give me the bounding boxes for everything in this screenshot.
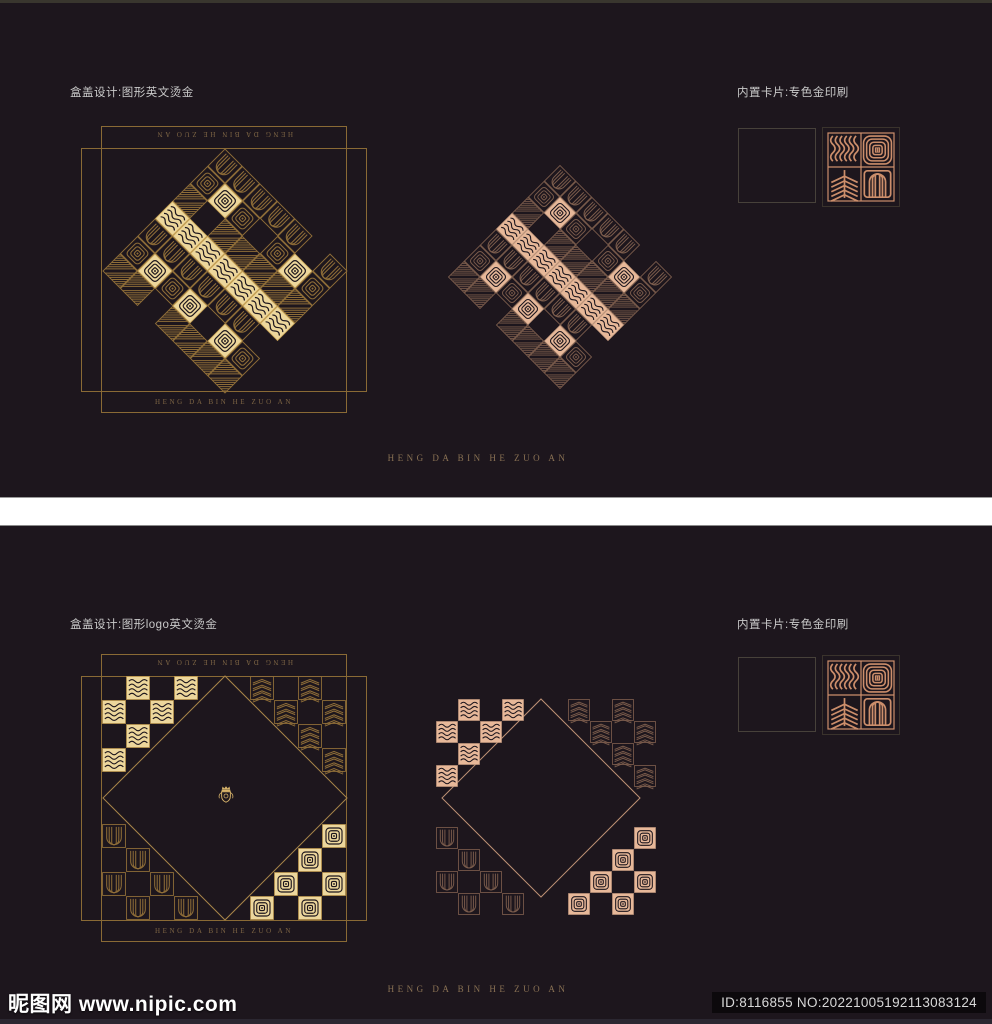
- page-bottom-strip: [0, 1019, 992, 1024]
- watermark-site: 昵图网 www.nipic.com: [8, 988, 237, 1018]
- panel-bottom-label-left: 盒盖设计:图形logo英文烫金: [70, 616, 217, 632]
- watermark-site-url: www.nipic.com: [79, 993, 238, 1016]
- panel-top-label-left: 盒盖设计:图形英文烫金: [70, 84, 194, 100]
- card-blank-bottom: [738, 657, 816, 732]
- panel-bottom-label-right: 内置卡片:专色金印刷: [737, 616, 849, 632]
- panel-bottom-brand-text: HENG DA BIN HE ZUO AN: [378, 984, 578, 994]
- page-top-strip: [0, 0, 992, 3]
- lid2-diamond-design-copper: [425, 685, 665, 915]
- card-blank-top: [738, 128, 816, 203]
- design-presentation-page: { "panel_top": { "label_left": "盒盖设计:图形英…: [0, 0, 992, 1024]
- lid2-diamond-design-gold: [75, 648, 375, 948]
- watermark-site-name: 昵图网: [8, 993, 73, 1016]
- card-pattern-top: [822, 127, 900, 207]
- panel-top-brand-text: HENG DA BIN HE ZUO AN: [378, 453, 578, 463]
- panel-top-label-right: 内置卡片:专色金印刷: [737, 84, 849, 100]
- white-divider: [0, 497, 992, 526]
- watermark-id-badge: ID:8116855 NO:20221005192113083124: [712, 992, 986, 1013]
- card-pattern-bottom: [822, 655, 900, 735]
- lid1-checker-pattern-copper: [430, 147, 690, 407]
- lid1-frame-text-top: HENG DA BIN HE ZUO AN: [101, 130, 347, 138]
- lid1-checker-pattern-gold: [95, 141, 355, 401]
